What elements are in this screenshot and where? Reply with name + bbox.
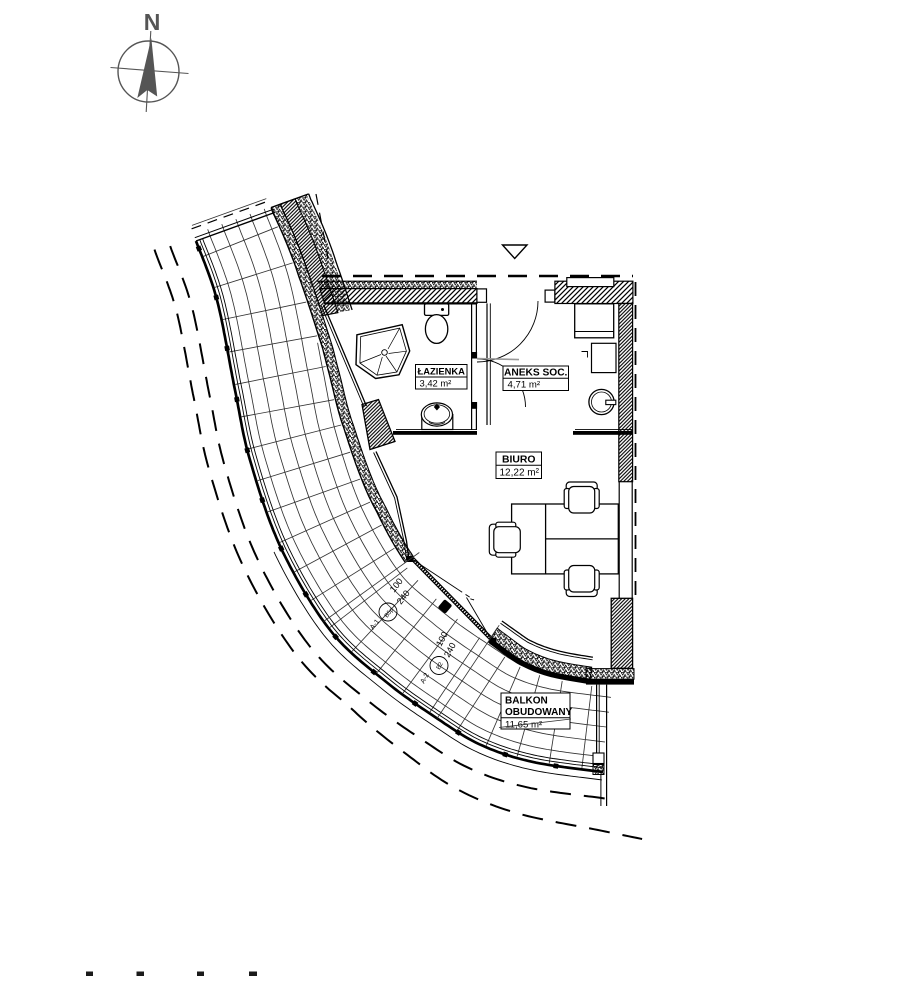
svg-text:3,42 m²: 3,42 m² <box>420 377 452 388</box>
svg-text:12,22 m²: 12,22 m² <box>500 468 540 479</box>
svg-text:OBUDOWANY: OBUDOWANY <box>505 707 573 718</box>
svg-text:BIURO: BIURO <box>502 454 535 465</box>
svg-text:4,71 m²: 4,71 m² <box>508 380 541 391</box>
svg-text:ANEKS SOC.: ANEKS SOC. <box>504 368 568 379</box>
svg-text:ŁAZIENKA: ŁAZIENKA <box>417 365 465 376</box>
svg-text:BALKON: BALKON <box>505 696 548 707</box>
svg-text:N: N <box>144 9 161 35</box>
